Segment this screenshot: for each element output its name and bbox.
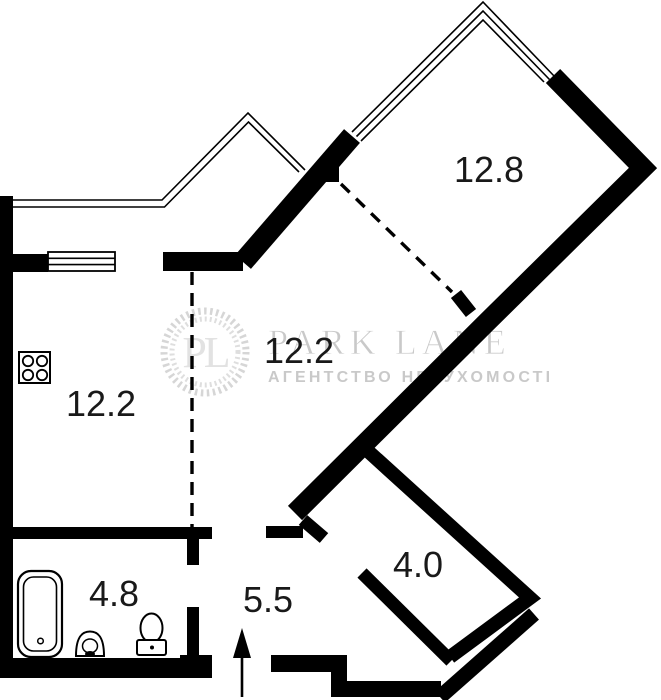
wall-balcony-right <box>163 252 243 271</box>
wall-niche-southwest <box>362 573 451 661</box>
entrance-arrow-icon <box>233 628 251 697</box>
wall-bathroom-right-upper <box>187 537 199 565</box>
toilet-bowl <box>141 614 163 643</box>
sink-basin <box>83 639 98 653</box>
room-label-kitchen: 12.2 <box>66 383 136 424</box>
toilet-button <box>150 646 154 650</box>
wall-diagonal-upper-left <box>243 136 352 262</box>
wall-balcony-stub <box>0 254 48 272</box>
bathtub-drain <box>38 638 44 644</box>
floor-plan-canvas: PL PARK LANE АГЕНТСТВО НЕРУХОМОСТІ <box>0 0 661 700</box>
bedroom-window-line-1 <box>352 2 555 132</box>
room-label-niche: 4.0 <box>393 544 443 585</box>
stove-icon <box>19 352 50 383</box>
wall-dashed-start-tab <box>321 164 339 182</box>
balcony-window-line-outer <box>13 113 305 200</box>
stove-burner-4 <box>37 370 47 380</box>
wall-bottom-lower-bar <box>331 681 441 697</box>
wall-bathroom-right-lower <box>187 607 199 657</box>
stove-burner-1 <box>23 356 33 366</box>
toilet-icon <box>137 614 166 656</box>
wall-bathroom-top <box>0 527 212 539</box>
wall-living-door-tab <box>266 526 303 538</box>
window-unit-frame <box>48 252 115 271</box>
sink-tap <box>85 651 95 657</box>
bedroom-window-line-3 <box>361 20 544 141</box>
wall-bathroom-bottom <box>0 658 212 678</box>
bathtub-icon <box>18 571 62 657</box>
bedroom-zone-dashed-line <box>341 184 452 292</box>
watermark-monogram: PL <box>182 328 228 377</box>
stove-burner-3 <box>23 370 33 380</box>
balcony-door-window-unit <box>48 252 115 271</box>
sink-icon <box>76 632 104 658</box>
room-label-hallway: 5.5 <box>243 579 293 620</box>
room-label-living: 12.2 <box>264 330 334 371</box>
stove-burner-2 <box>37 356 47 366</box>
entrance-arrow-head <box>233 628 251 658</box>
watermark-tagline-text: АГЕНТСТВО НЕРУХОМОСТІ <box>268 369 553 386</box>
balcony-window-line-inner <box>13 122 299 207</box>
room-label-bathroom: 4.8 <box>89 573 139 614</box>
wall-living-door-jamb <box>303 520 324 538</box>
wall-bottom-upper-bar <box>271 655 347 672</box>
laurel-wreath-icon: PL <box>164 311 246 393</box>
wall-dashed-end-stub <box>456 294 471 313</box>
room-label-bedroom: 12.8 <box>454 149 524 190</box>
floor-plan-svg: PL PARK LANE АГЕНТСТВО НЕРУХОМОСТІ <box>0 0 661 700</box>
